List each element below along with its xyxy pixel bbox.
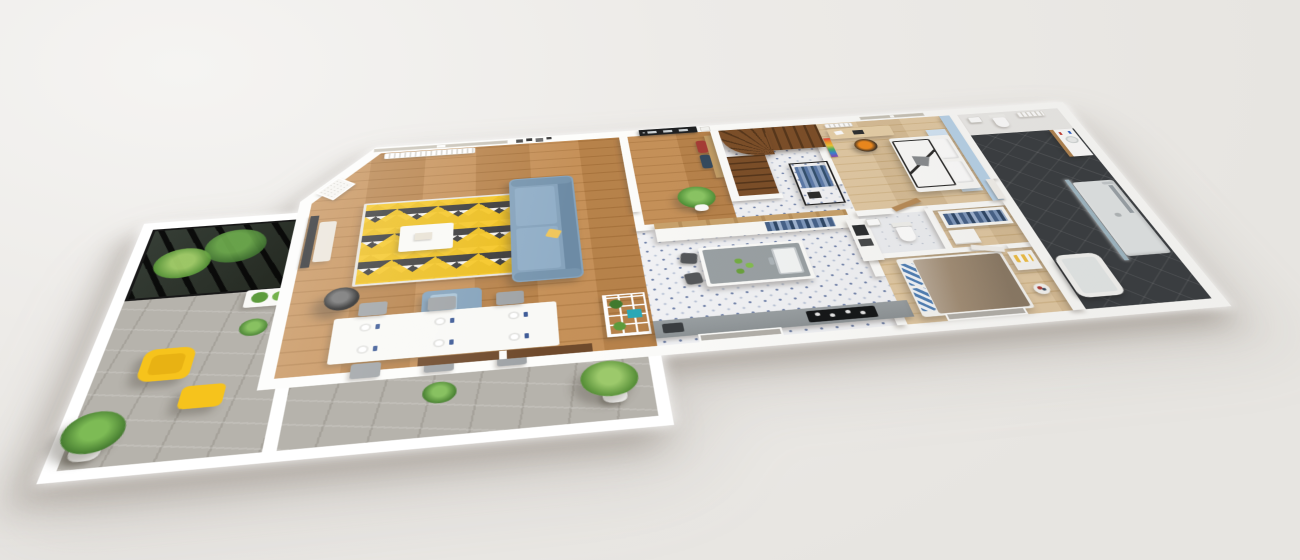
wc-basin [865, 218, 882, 226]
yellow-striped-cushion [1013, 254, 1034, 263]
place-setting [508, 311, 520, 320]
door-handle [642, 132, 645, 134]
photo-frame-3 [535, 138, 543, 142]
napkin [373, 346, 378, 352]
laptop [852, 130, 865, 135]
dining-chair [358, 301, 388, 316]
vanity-basin [1063, 136, 1080, 144]
napkin [450, 318, 454, 323]
sofa-cushion [515, 186, 558, 227]
photo-frame-4 [546, 137, 551, 140]
napkin [524, 312, 528, 317]
terrace-plant-mid [422, 380, 457, 404]
threshold-post [499, 350, 507, 359]
shelving-rack [602, 292, 652, 337]
building [257, 102, 1232, 390]
toothbrush-blue [1067, 131, 1072, 134]
toothbrush-red [1058, 132, 1063, 135]
coffee-table [398, 223, 454, 253]
dining-chair [427, 296, 456, 311]
hob-burner [845, 310, 851, 314]
armchair-seat [146, 353, 187, 376]
photo-frame-2 [526, 138, 532, 141]
place-setting [434, 317, 446, 326]
scene: 3D isometric floor plan — single-storey … [0, 0, 1300, 560]
sofa [509, 175, 584, 283]
hob-burner [829, 313, 835, 317]
rack-hanging-clothes [794, 165, 834, 188]
microwave-door [858, 238, 874, 246]
place-setting [359, 323, 372, 332]
terrace-palm-large [52, 409, 132, 457]
napkin [375, 324, 380, 329]
photo-frame-1 [516, 139, 523, 143]
place-setting [433, 339, 445, 348]
terrace-palm-right [579, 359, 641, 399]
place-setting [356, 345, 369, 354]
planter-greenery [250, 291, 269, 303]
terrace-plant-small [237, 317, 269, 336]
napkin [524, 333, 529, 338]
floor-plan [10, 102, 1282, 486]
coffee-table-book [415, 232, 433, 240]
canopy-palm [148, 246, 215, 280]
dining-chair [496, 290, 524, 305]
door-glazing-slit [663, 130, 673, 133]
dining-chair [349, 362, 381, 380]
yellow-footrest [176, 383, 227, 410]
rack-teal-box [627, 309, 643, 319]
bar-stool [680, 253, 697, 264]
place-setting [508, 332, 520, 341]
rack-plant [613, 321, 627, 331]
stair-upper-run [763, 124, 826, 150]
oven-door [852, 225, 870, 236]
desk-papers [834, 130, 844, 135]
laundry-items [1041, 288, 1047, 291]
door-glazing-slit [678, 129, 688, 132]
rack-plant [609, 299, 624, 309]
door-glazing-slit [647, 131, 657, 134]
yellow-armchair [135, 346, 198, 383]
shower-drain [1114, 213, 1123, 217]
rack-shelf-bag [807, 191, 822, 198]
wardrobe-clothes [943, 210, 1009, 226]
hob-burner [860, 311, 866, 315]
napkin [449, 339, 454, 345]
small-appliance [662, 322, 685, 333]
